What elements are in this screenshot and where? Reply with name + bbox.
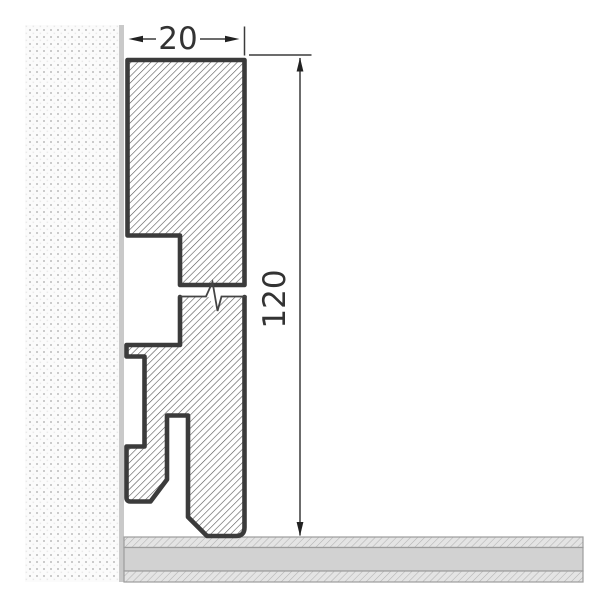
floor-top-layer xyxy=(124,537,583,548)
height-dimension-label: 120 xyxy=(257,269,293,328)
wall-edge-line xyxy=(119,25,124,582)
skirting-profile-drawing: 20 120 xyxy=(0,0,604,604)
width-dimension-label: 20 xyxy=(158,21,197,57)
technical-drawing-canvas: 20 120 xyxy=(0,0,604,604)
wall-texture xyxy=(25,25,119,582)
floor xyxy=(124,537,583,582)
floor-bottom-layer xyxy=(124,571,583,582)
floor-middle-layer xyxy=(124,548,583,572)
